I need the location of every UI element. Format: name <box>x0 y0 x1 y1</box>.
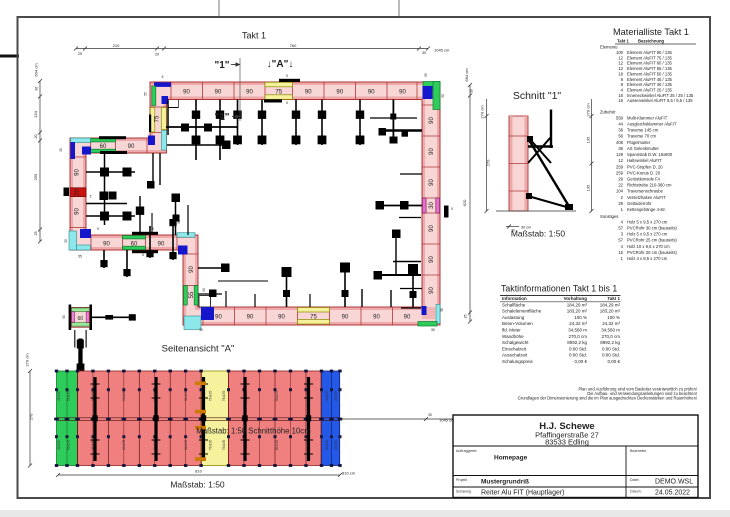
svg-text:18: 18 <box>618 71 623 76</box>
svg-text:90x135: 90x135 <box>275 391 279 402</box>
svg-text:104: 104 <box>616 189 624 194</box>
svg-text:Multi-Klammer AluFIT: Multi-Klammer AluFIT <box>627 115 668 120</box>
svg-text:Schnitt "1": Schnitt "1" <box>513 90 562 102</box>
svg-text:Holz 10 x 9,5 x 270 cm: Holz 10 x 9,5 x 270 cm <box>627 244 670 249</box>
svg-text:8992,2 kg: 8992,2 kg <box>600 340 620 345</box>
svg-text:5: 5 <box>162 75 164 79</box>
svg-text:810: 810 <box>195 469 202 474</box>
svg-text:83533 Edling: 83533 Edling <box>545 438 589 447</box>
svg-text:36: 36 <box>618 128 623 133</box>
svg-text:30: 30 <box>428 413 432 417</box>
svg-text:Schalfläche: Schalfläche <box>502 302 526 307</box>
svg-text:5: 5 <box>90 195 92 199</box>
svg-text:75: 75 <box>310 315 317 321</box>
svg-text:"1": "1" <box>214 112 229 123</box>
svg-text:PVC-Konus D. 20: PVC-Konus D. 20 <box>627 170 661 175</box>
svg-text:75: 75 <box>155 115 161 122</box>
svg-text:25: 25 <box>78 52 82 56</box>
svg-text:Gerüstkonsole FA: Gerüstkonsole FA <box>627 177 660 182</box>
svg-text:Aussenwinkel AluFIT 9,5 / 9,5: Aussenwinkel AluFIT 9,5 / 9,5 / 135 <box>627 98 693 103</box>
svg-text:55: 55 <box>78 255 82 259</box>
svg-text:90: 90 <box>278 315 285 321</box>
svg-text:60: 60 <box>100 144 107 150</box>
svg-text:Seitenansicht "A": Seitenansicht "A" <box>162 344 235 355</box>
svg-text:760: 760 <box>290 43 297 48</box>
svg-text:Wandhöhe: Wandhöhe <box>502 334 524 339</box>
svg-text:90: 90 <box>247 315 254 321</box>
svg-text:90: 90 <box>429 256 435 263</box>
svg-text:270: 270 <box>29 413 34 420</box>
svg-text:20: 20 <box>75 189 81 196</box>
svg-text:AE135: AE135 <box>57 440 61 450</box>
svg-text:29: 29 <box>618 177 623 182</box>
svg-text:45: 45 <box>59 148 63 152</box>
svg-text:Ausgleichsklammer AluFIT: Ausgleichsklammer AluFIT <box>627 122 677 127</box>
svg-text:183,20 m²: 183,20 m² <box>567 309 588 314</box>
svg-text:90: 90 <box>429 287 435 294</box>
svg-text:Maßstab: 1:50: Maßstab: 1:50 <box>170 480 225 490</box>
svg-text:40x135: 40x135 <box>325 440 329 451</box>
svg-text:0:00 Std.: 0:00 Std. <box>569 346 587 351</box>
svg-text:Inneneckwinkel AluFIT 25 / 25: Inneneckwinkel AluFIT 25 / 25 / 135 <box>627 93 694 98</box>
svg-text:Versetzhaken AluFIT: Versetzhaken AluFIT <box>627 195 666 200</box>
svg-text:Bezeichnung: Bezeichnung <box>638 39 664 44</box>
svg-text:PVC-Stopfen D. 20: PVC-Stopfen D. 20 <box>627 164 663 169</box>
svg-text:90: 90 <box>368 90 375 96</box>
svg-text:90: 90 <box>342 315 349 321</box>
svg-text:Grundlagen der Dimensionierung: Grundlagen der Dimensionierung sind die … <box>518 396 697 401</box>
svg-text:lfd. Meter: lfd. Meter <box>502 328 521 333</box>
svg-text:90: 90 <box>429 225 435 232</box>
svg-text:Maßstab: 1:50: Maßstab: 1:50 <box>511 229 566 239</box>
svg-text:604 cm: 604 cm <box>34 63 39 77</box>
svg-text:56: 56 <box>618 134 623 139</box>
svg-text:620: 620 <box>462 199 467 206</box>
svg-text:Datei:: Datei: <box>630 478 639 482</box>
svg-text:Schalgewicht: Schalgewicht <box>502 340 529 345</box>
svg-text:50: 50 <box>441 94 445 98</box>
svg-text:Traversenschraube: Traversenschraube <box>627 189 664 194</box>
svg-text:Information: Information <box>502 296 527 301</box>
svg-text:50: 50 <box>64 239 68 243</box>
svg-text:100: 100 <box>616 50 624 55</box>
svg-text:30: 30 <box>440 308 444 312</box>
svg-text:5: 5 <box>142 253 144 257</box>
svg-text:90: 90 <box>75 169 81 176</box>
svg-text:90x135: 90x135 <box>275 440 279 451</box>
svg-text:24.05.2022: 24.05.2022 <box>655 490 690 497</box>
svg-text:29: 29 <box>618 201 623 206</box>
svg-text:Beton-Volumen: Beton-Volumen <box>502 321 533 326</box>
svg-text:PVCRohr 25 cm (bauseits): PVCRohr 25 cm (bauseits) <box>627 238 677 243</box>
svg-text:408: 408 <box>616 140 624 145</box>
svg-text:100 %: 100 % <box>607 315 620 320</box>
svg-text:1045 cm: 1045 cm <box>434 48 450 53</box>
svg-text:90x135: 90x135 <box>184 440 188 451</box>
svg-text:Holz 4 x 9,5 x 270 cm: Holz 4 x 9,5 x 270 cm <box>627 256 668 261</box>
svg-text:25: 25 <box>34 232 38 236</box>
svg-text:12: 12 <box>618 55 623 60</box>
svg-text:Taktinformationen Takt 1 bis: Taktinformationen Takt 1 bis 1 <box>501 284 617 294</box>
svg-text:↓"A"↓: ↓"A"↓ <box>267 59 294 70</box>
svg-text:90: 90 <box>404 315 411 321</box>
svg-text:90: 90 <box>189 266 195 273</box>
svg-text:810 cm: 810 cm <box>342 471 356 476</box>
svg-text:15: 15 <box>618 250 623 255</box>
svg-text:90: 90 <box>158 242 165 248</box>
svg-text:30: 30 <box>422 51 426 55</box>
svg-text:Traverse 70 cm: Traverse 70 cm <box>627 134 656 139</box>
svg-text:Holz 5 x 9,5 x 270 cm: Holz 5 x 9,5 x 270 cm <box>627 232 668 237</box>
svg-text:Spannstab D.W. 15x800: Spannstab D.W. 15x800 <box>627 152 673 157</box>
svg-text:Element AluFIT 50 / 135: Element AluFIT 50 / 135 <box>627 71 673 76</box>
svg-text:30: 30 <box>199 328 203 332</box>
svg-text:30: 30 <box>470 89 474 93</box>
svg-text:20: 20 <box>34 135 38 139</box>
svg-text:210: 210 <box>113 43 120 48</box>
svg-text:24,32 m³: 24,32 m³ <box>602 321 620 326</box>
svg-text:AS Gelenkmutter: AS Gelenkmutter <box>627 146 659 151</box>
svg-text:90: 90 <box>215 315 222 321</box>
svg-text:8992,2 kg: 8992,2 kg <box>567 340 587 345</box>
svg-text:Kettengehänge 4-str.: Kettengehänge 4-str. <box>627 207 666 212</box>
svg-text:90: 90 <box>336 90 343 96</box>
svg-text:22: 22 <box>618 183 623 188</box>
svg-text:Schalungspreis: Schalungspreis <box>502 359 534 364</box>
svg-text:270 cm: 270 cm <box>25 353 30 367</box>
svg-text:259: 259 <box>616 170 624 175</box>
svg-text:Datum:: Datum: <box>630 490 642 494</box>
svg-text:Element AluFIT 20 / 135: Element AluFIT 20 / 135 <box>627 87 673 92</box>
svg-text:50: 50 <box>62 315 66 319</box>
svg-text:100 %: 100 % <box>574 315 587 320</box>
svg-text:AE135: AE135 <box>334 391 338 401</box>
svg-text:0:00 Std.: 0:00 Std. <box>569 353 587 358</box>
svg-text:Materialliste Takt 1: Materialliste Takt 1 <box>613 27 689 37</box>
svg-text:Takt 1: Takt 1 <box>607 296 620 301</box>
svg-text:255: 255 <box>33 173 38 180</box>
svg-text:90x135: 90x135 <box>122 391 126 402</box>
svg-text:55: 55 <box>431 328 435 332</box>
svg-text:0,00 €: 0,00 € <box>607 359 620 364</box>
svg-text:Maßstab: 1:50 Schnitthöhe 10: Maßstab: 1:50 Schnitthöhe 10cm <box>196 427 310 436</box>
svg-text:Haltewinkel AluFIT: Haltewinkel AluFIT <box>627 158 662 163</box>
svg-text:Element AluFIT 75 / 135: Element AluFIT 75 / 135 <box>627 55 673 60</box>
svg-text:134: 134 <box>33 110 38 117</box>
svg-text:Holz 5 x 9,5 x 270 cm: Holz 5 x 9,5 x 270 cm <box>627 219 668 224</box>
svg-text:90x135: 90x135 <box>122 440 126 451</box>
svg-text:270,0 cm: 270,0 cm <box>568 334 587 339</box>
svg-text:75: 75 <box>275 90 282 96</box>
svg-text:12: 12 <box>618 61 623 66</box>
svg-text:270,0 cm: 270,0 cm <box>601 334 620 339</box>
svg-text:75x135: 75x135 <box>222 391 226 402</box>
svg-text:30: 30 <box>429 202 435 209</box>
svg-text:135: 135 <box>586 136 591 143</box>
svg-text:90: 90 <box>75 208 81 215</box>
svg-text:AE135: AE135 <box>57 391 61 401</box>
svg-text:Auslastung: Auslastung <box>502 315 525 320</box>
svg-text:12: 12 <box>618 158 623 163</box>
svg-text:Schalung: Schalung <box>456 490 471 494</box>
svg-text:25: 25 <box>464 315 468 319</box>
svg-text:75x135: 75x135 <box>209 391 213 402</box>
svg-text:90: 90 <box>128 144 135 150</box>
svg-text:Flügelmutter: Flügelmutter <box>627 140 651 145</box>
svg-text:684 cm: 684 cm <box>464 68 469 82</box>
svg-text:90: 90 <box>103 242 110 248</box>
svg-text:75x135: 75x135 <box>209 440 213 451</box>
svg-text:Schalelementfläche: Schalelementfläche <box>502 309 542 314</box>
svg-text:0:00 Std.: 0:00 Std. <box>602 353 620 358</box>
svg-text:Einschalzeit: Einschalzeit <box>502 346 527 351</box>
svg-text:36: 36 <box>618 146 623 151</box>
svg-text:60: 60 <box>131 242 138 248</box>
svg-text:55: 55 <box>424 73 428 77</box>
svg-text:259: 259 <box>616 164 624 169</box>
svg-text:90: 90 <box>202 288 206 292</box>
svg-text:55x135: 55x135 <box>67 391 71 402</box>
svg-text:183,20 m²: 183,20 m² <box>600 309 621 314</box>
svg-text:0:00 Std.: 0:00 Std. <box>602 346 620 351</box>
svg-text:55x135: 55x135 <box>67 440 71 451</box>
svg-text:Element AluFIT 30 / 135: Element AluFIT 30 / 135 <box>627 82 673 87</box>
svg-text:16: 16 <box>618 93 623 98</box>
svg-text:Mustergrundriß: Mustergrundriß <box>481 479 529 486</box>
svg-text:90: 90 <box>429 148 435 155</box>
svg-text:90: 90 <box>305 90 312 96</box>
svg-text:Zubehör: Zubehör <box>600 110 616 115</box>
svg-text:270 cm: 270 cm <box>586 103 591 117</box>
svg-text:90: 90 <box>429 117 435 124</box>
svg-text:Geländerrohr: Geländerrohr <box>627 201 652 206</box>
svg-text:34,560 m: 34,560 m <box>568 328 587 333</box>
svg-text:34,560 m: 34,560 m <box>601 328 620 333</box>
svg-text:55: 55 <box>189 291 195 298</box>
svg-text:DEMO.WSL: DEMO.WSL <box>655 479 693 486</box>
svg-text:5: 5 <box>451 207 453 211</box>
svg-text:57: 57 <box>618 238 623 243</box>
svg-text:Homepage: Homepage <box>494 455 528 462</box>
svg-text:129: 129 <box>616 152 624 157</box>
svg-text:30: 30 <box>35 87 39 91</box>
svg-text:Richtstrebe 210-360 cm: Richtstrebe 210-360 cm <box>627 183 672 188</box>
svg-text:PVCRohr 30 cm (bauseits): PVCRohr 30 cm (bauseits) <box>627 226 677 231</box>
svg-text:5: 5 <box>97 227 99 231</box>
svg-text:Reiter Alu FIT (Hauptlager): Reiter Alu FIT (Hauptlager) <box>481 490 565 497</box>
svg-text:0,00 €: 0,00 € <box>574 359 587 364</box>
svg-text:"1": "1" <box>214 60 229 71</box>
svg-text:55: 55 <box>144 92 148 96</box>
svg-text:Takt 1: Takt 1 <box>242 31 266 41</box>
svg-text:Projekt: Projekt <box>456 478 467 482</box>
svg-text:Element AluFIT 55 / 135: Element AluFIT 55 / 135 <box>627 66 673 71</box>
svg-text:Element AluFIT 45 / 135: Element AluFIT 45 / 135 <box>627 77 673 82</box>
svg-text:90: 90 <box>373 315 380 321</box>
svg-text:Elemente: Elemente <box>600 44 618 49</box>
svg-text:Element AluFIT 90 / 135: Element AluFIT 90 / 135 <box>627 50 673 55</box>
svg-text:184,29 m²: 184,29 m² <box>567 302 588 307</box>
svg-text:Vorhaltung: Vorhaltung <box>564 296 588 301</box>
svg-text:20: 20 <box>155 53 159 57</box>
svg-text:PVCRohr 20 cm (bauseits): PVCRohr 20 cm (bauseits) <box>627 250 677 255</box>
svg-text:90x135: 90x135 <box>184 391 188 402</box>
svg-text:75x135: 75x135 <box>222 440 226 451</box>
svg-text:Sonstiges: Sonstiges <box>600 214 618 219</box>
svg-text:135: 135 <box>586 184 591 191</box>
svg-text:57: 57 <box>618 226 623 231</box>
svg-text:44: 44 <box>618 122 623 127</box>
svg-text:Bearbeiter: Bearbeiter <box>630 449 647 453</box>
svg-text:Traverse 145 cm: Traverse 145 cm <box>627 128 659 133</box>
svg-text:Ausschalzeit: Ausschalzeit <box>502 353 528 358</box>
svg-text:24,32 m³: 24,32 m³ <box>569 321 587 326</box>
svg-text:270 cm: 270 cm <box>480 105 485 119</box>
svg-text:90: 90 <box>215 90 222 96</box>
svg-text:90: 90 <box>246 90 253 96</box>
svg-text:16: 16 <box>618 98 623 103</box>
svg-text:12: 12 <box>618 66 623 71</box>
svg-text:270: 270 <box>486 159 491 166</box>
svg-text:184,29 m²: 184,29 m² <box>600 302 621 307</box>
svg-text:90: 90 <box>399 90 406 96</box>
svg-text:5: 5 <box>286 101 288 105</box>
svg-text:60: 60 <box>78 316 84 322</box>
svg-text:Element AluFIT 60 / 135: Element AluFIT 60 / 135 <box>627 61 673 66</box>
svg-text:AE135: AE135 <box>334 440 338 450</box>
svg-text:90: 90 <box>183 90 190 96</box>
svg-text:5: 5 <box>286 74 288 78</box>
svg-text:40x135: 40x135 <box>325 391 329 402</box>
svg-text:Auftraggeber: Auftraggeber <box>456 449 478 453</box>
svg-text:90: 90 <box>429 179 435 186</box>
svg-text:Takt 1: Takt 1 <box>617 39 629 44</box>
svg-text:559: 559 <box>616 115 624 120</box>
